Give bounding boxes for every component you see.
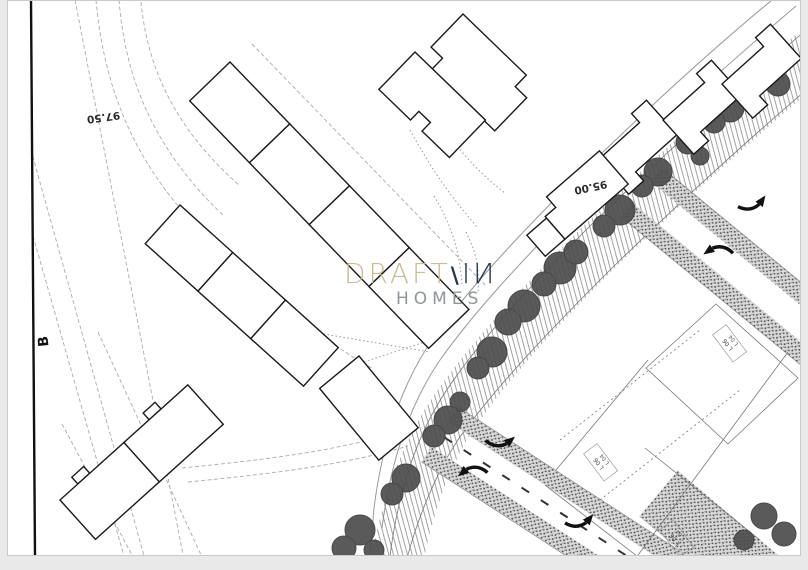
road-label-b: B bbox=[36, 335, 53, 347]
building-single-south bbox=[320, 356, 419, 460]
building-row-southwest bbox=[54, 378, 223, 539]
elevation-label-9750: 97.50 bbox=[86, 109, 121, 126]
plot-label-group: L 06 L 04 bbox=[713, 325, 747, 362]
turn-arrow-icon bbox=[738, 186, 769, 218]
plot-label-group: L 06 L 04 bbox=[584, 444, 618, 481]
building-row-middle bbox=[145, 205, 338, 386]
cross-street-corner bbox=[639, 471, 808, 570]
site-boundary-line bbox=[31, 0, 35, 556]
scanned-sheet: 97.50 95.00 B L 06 L 04 L 06 L 04 L 06 bbox=[0, 0, 808, 570]
site-plan-canvas: 97.50 95.00 B L 06 L 04 L 06 L 04 L 06 bbox=[0, 0, 808, 570]
lane-centerline bbox=[444, 437, 660, 570]
